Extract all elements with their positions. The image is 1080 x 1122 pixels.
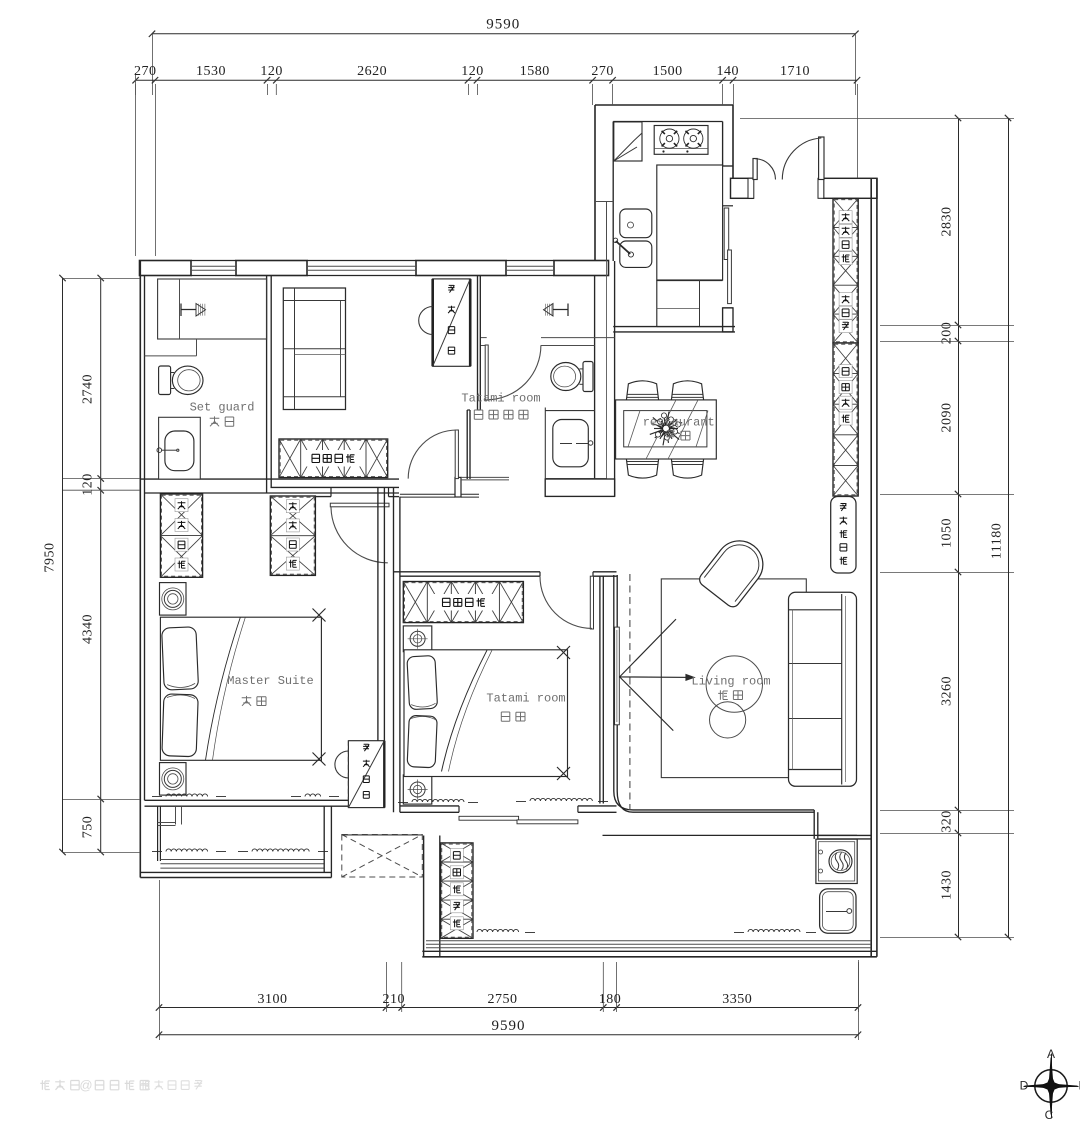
- svg-text:270: 270: [591, 64, 614, 79]
- svg-text:200: 200: [940, 322, 955, 345]
- svg-text:Living room: Living room: [691, 675, 770, 689]
- svg-text:C: C: [1045, 1108, 1054, 1122]
- svg-text:11180: 11180: [990, 523, 1005, 559]
- svg-text:180: 180: [599, 992, 622, 1007]
- svg-text:Set guard: Set guard: [190, 401, 255, 415]
- svg-text:Tatami room: Tatami room: [486, 692, 565, 706]
- svg-text:3350: 3350: [722, 992, 752, 1007]
- svg-text:2740: 2740: [81, 374, 96, 404]
- svg-text:1530: 1530: [196, 64, 226, 79]
- svg-text:A: A: [1047, 1047, 1055, 1061]
- svg-text:1580: 1580: [520, 64, 550, 79]
- svg-text:2090: 2090: [940, 403, 955, 433]
- svg-text:210: 210: [383, 992, 406, 1007]
- svg-text:140: 140: [717, 64, 740, 79]
- svg-text:7950: 7950: [43, 543, 58, 573]
- svg-text:1500: 1500: [653, 64, 683, 79]
- svg-text:120: 120: [81, 473, 96, 496]
- svg-text:9590: 9590: [492, 1018, 526, 1034]
- svg-text:750: 750: [81, 816, 96, 839]
- svg-text:2620: 2620: [357, 64, 387, 79]
- svg-text:9590: 9590: [486, 17, 520, 33]
- svg-text:Master Suite: Master Suite: [227, 674, 313, 688]
- svg-text:2830: 2830: [940, 207, 955, 237]
- svg-text:Tatami room: Tatami room: [461, 392, 540, 406]
- svg-text:3260: 3260: [940, 676, 955, 706]
- svg-text:1430: 1430: [940, 870, 955, 900]
- svg-text:1710: 1710: [780, 64, 810, 79]
- svg-text:4340: 4340: [81, 614, 96, 644]
- svg-text:320: 320: [940, 810, 955, 833]
- svg-text:1050: 1050: [940, 518, 955, 548]
- svg-text:3100: 3100: [258, 992, 288, 1007]
- svg-text:120: 120: [461, 64, 484, 79]
- svg-text:@: @: [79, 1078, 92, 1093]
- svg-text:120: 120: [260, 64, 283, 79]
- svg-text:270: 270: [134, 64, 157, 79]
- svg-text:2750: 2750: [488, 992, 518, 1007]
- svg-text:D: D: [1020, 1079, 1029, 1093]
- svg-text:restaurant: restaurant: [643, 416, 715, 430]
